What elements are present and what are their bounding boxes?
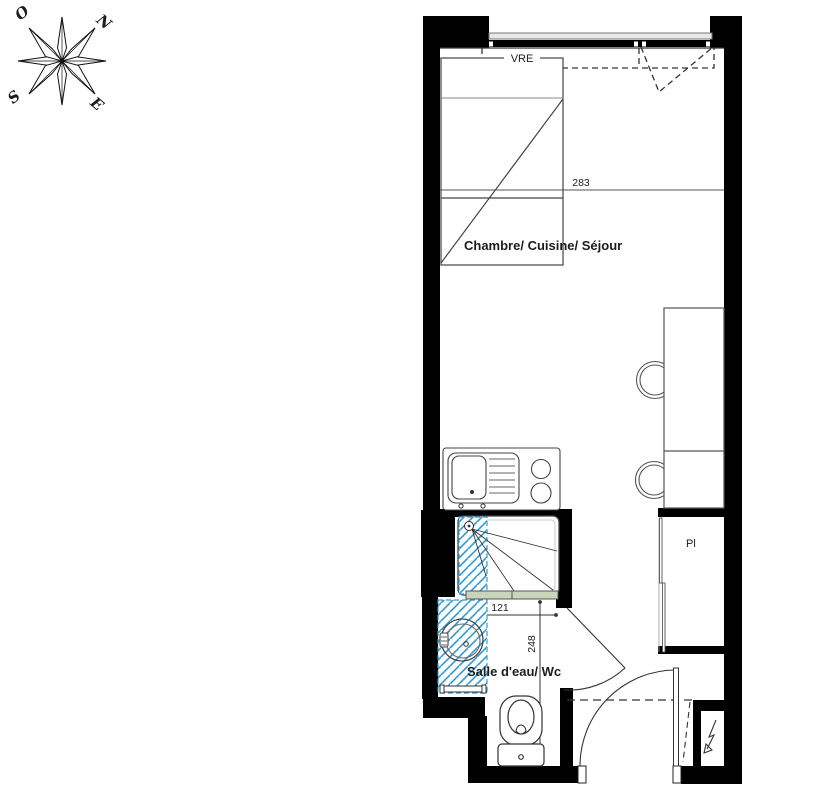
wall-closet-bottom bbox=[658, 646, 724, 654]
lightning-icon bbox=[704, 720, 716, 753]
wall-elec-left bbox=[693, 711, 701, 766]
window-frame-joint bbox=[706, 42, 710, 47]
label-closet: Pl bbox=[686, 538, 696, 550]
compass-letter-south: S bbox=[4, 87, 24, 108]
window-casement-swing bbox=[641, 47, 713, 92]
toilet-icon bbox=[498, 696, 544, 766]
towel-rail bbox=[440, 685, 486, 693]
compass-letter-north: N bbox=[92, 10, 116, 34]
wall-closet-top bbox=[658, 508, 724, 517]
label-vre: VRE bbox=[511, 53, 534, 65]
window-glazing bbox=[489, 33, 712, 39]
wall-left-upper bbox=[423, 48, 440, 512]
wall-bath-bottom-left bbox=[423, 697, 485, 718]
window-frame-joint bbox=[642, 42, 646, 47]
compass-letter-west: O bbox=[11, 2, 33, 24]
closet-sliding-door bbox=[660, 518, 663, 583]
wall-right bbox=[724, 16, 742, 784]
dim-283-value: 283 bbox=[572, 177, 590, 189]
shower bbox=[458, 516, 559, 599]
label-main-room: Chambre/ Cuisine/ Séjour bbox=[464, 238, 622, 253]
entry-door-jamb-left bbox=[578, 766, 586, 783]
label-bathroom: Salle d'eau/ Wc bbox=[467, 664, 561, 679]
faucet-icon bbox=[440, 633, 448, 647]
wall-top-left bbox=[423, 16, 489, 48]
entry-door-leaf bbox=[674, 668, 679, 766]
wall-bottom-right bbox=[681, 766, 742, 784]
shower-screen bbox=[466, 591, 558, 599]
washbasin-icon bbox=[440, 619, 483, 661]
sink-icon bbox=[448, 453, 519, 508]
compass-rose: O N S E bbox=[4, 2, 116, 115]
window-frame-joint bbox=[634, 42, 638, 47]
dim-248-value: 248 bbox=[526, 635, 538, 653]
bathroom-door bbox=[564, 608, 625, 690]
floor-plan: O N S E bbox=[0, 0, 834, 800]
wall-left-shower bbox=[421, 510, 455, 597]
compass-letter-east: E bbox=[86, 93, 108, 115]
wall-elec-top bbox=[693, 700, 724, 711]
entry-door bbox=[580, 668, 679, 766]
closet-pl: Pl bbox=[659, 518, 696, 652]
wall-left-bath bbox=[422, 595, 438, 699]
window-frame-joint bbox=[489, 42, 493, 47]
window-frame bbox=[487, 40, 715, 47]
vanity bbox=[438, 600, 487, 693]
closet-sliding-door bbox=[663, 583, 666, 652]
kitchen-unit bbox=[443, 448, 560, 510]
elec-closet-door-dashed bbox=[683, 702, 690, 762]
floor-plan-page: O N S E bbox=[0, 0, 834, 800]
bed bbox=[441, 58, 563, 265]
dim-121-value: 121 bbox=[491, 602, 509, 614]
wall-bottom-left bbox=[468, 766, 580, 783]
dining-counter bbox=[664, 308, 724, 508]
wall-wc-left bbox=[468, 716, 487, 768]
entry-door-jamb-right bbox=[673, 766, 681, 783]
